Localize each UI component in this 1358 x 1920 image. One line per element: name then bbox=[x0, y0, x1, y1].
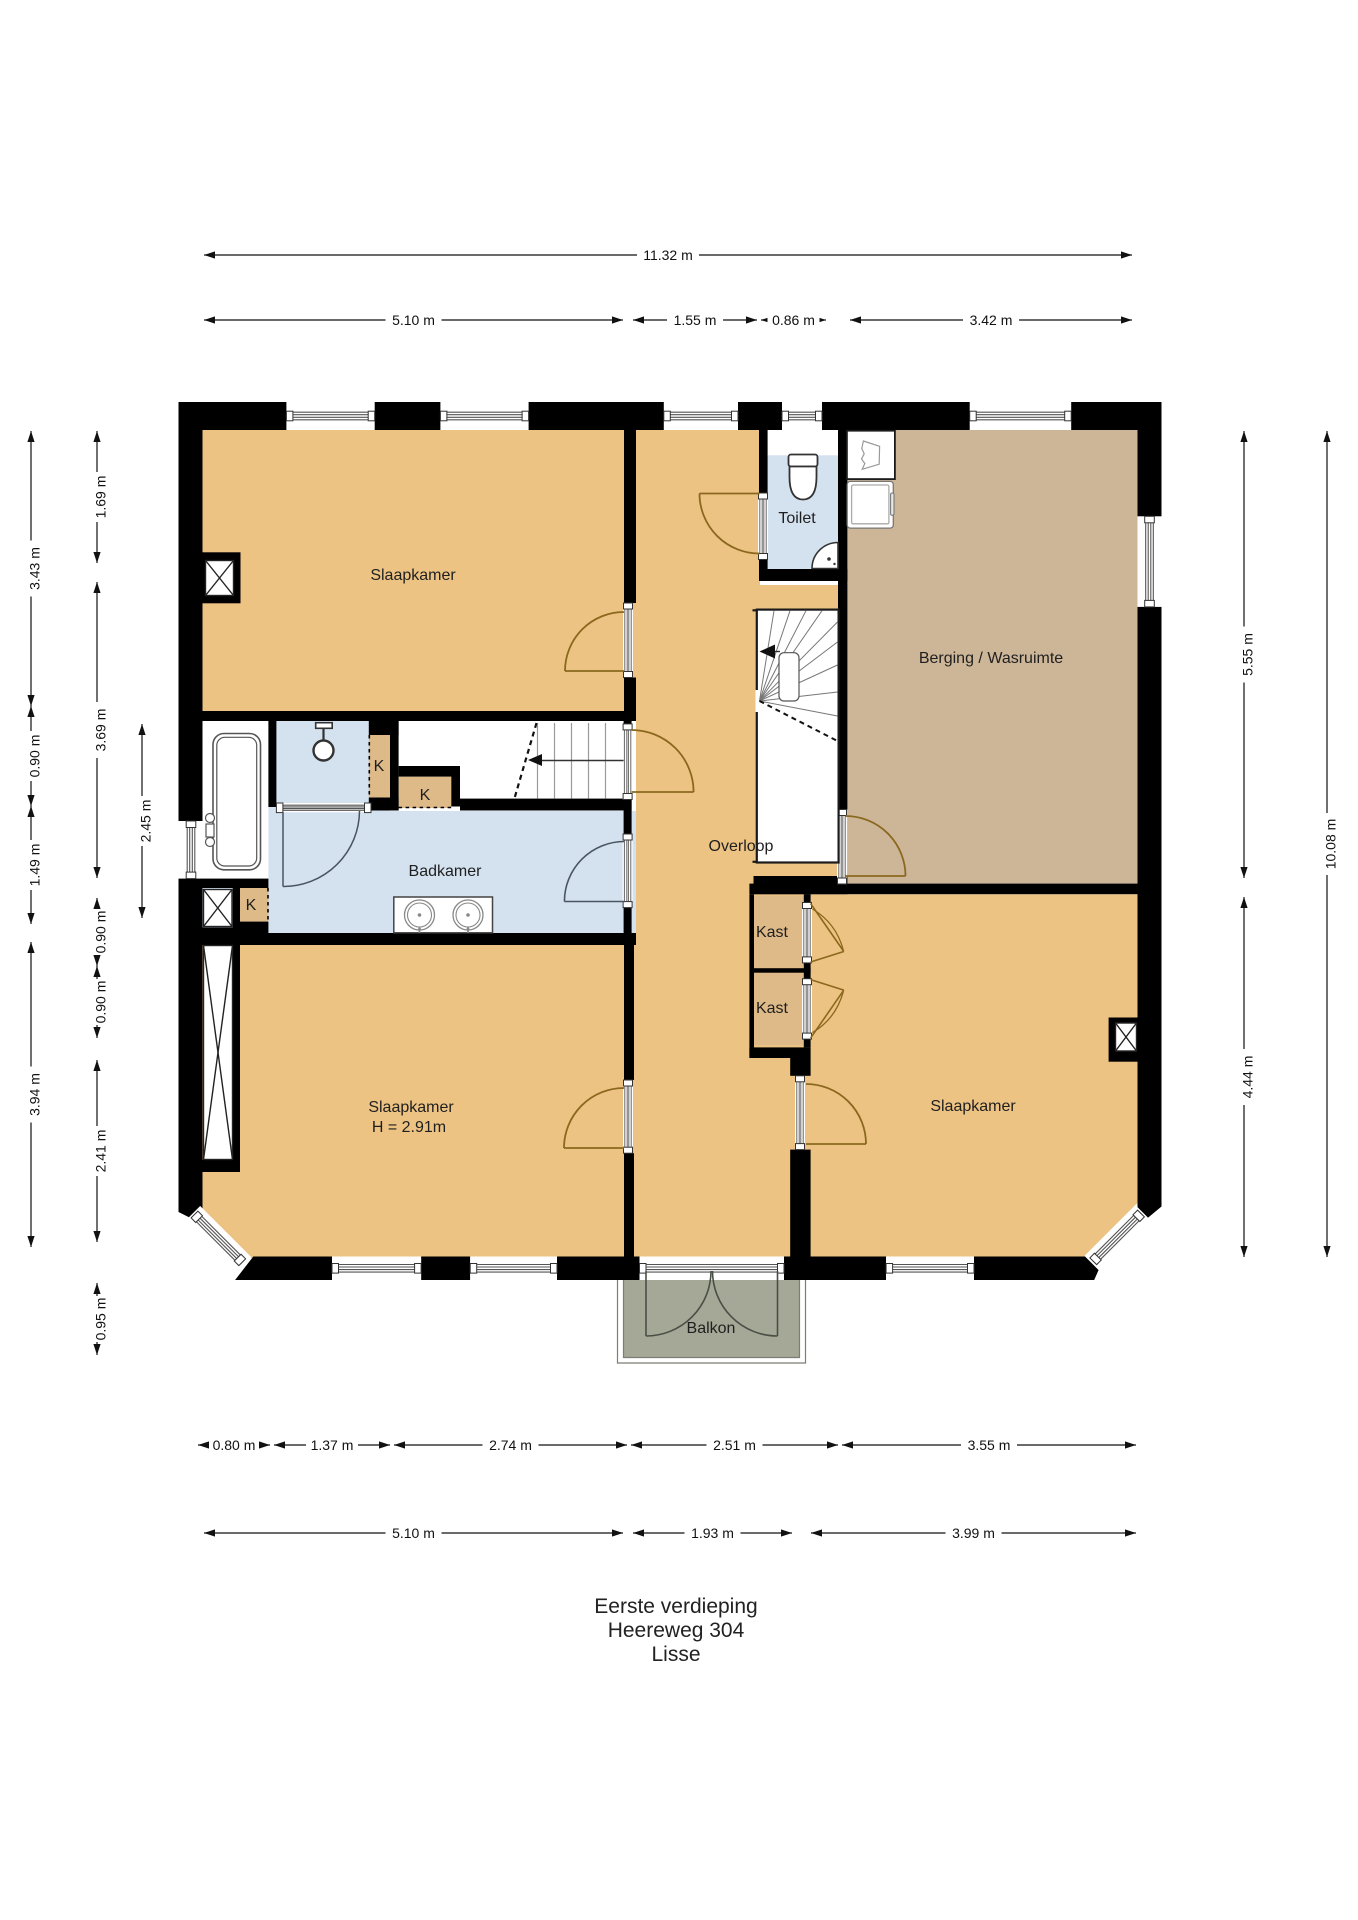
svg-text:2.74 m: 2.74 m bbox=[489, 1437, 532, 1453]
svg-text:3.94 m: 3.94 m bbox=[27, 1073, 43, 1116]
svg-text:3.55 m: 3.55 m bbox=[968, 1437, 1011, 1453]
svg-text:H = 2.91m: H = 2.91m bbox=[372, 1119, 446, 1136]
svg-text:3.99 m: 3.99 m bbox=[952, 1525, 995, 1541]
svg-text:0.90 m: 0.90 m bbox=[93, 911, 109, 954]
svg-text:1.93 m: 1.93 m bbox=[691, 1525, 734, 1541]
svg-text:1.37 m: 1.37 m bbox=[311, 1437, 354, 1453]
svg-text:Slaapkamer: Slaapkamer bbox=[370, 567, 456, 584]
svg-text:2.45 m: 2.45 m bbox=[138, 800, 154, 843]
svg-text:1.55 m: 1.55 m bbox=[674, 312, 717, 328]
svg-text:3.69 m: 3.69 m bbox=[93, 709, 109, 752]
svg-text:Berging / Wasruimte: Berging / Wasruimte bbox=[919, 650, 1063, 667]
svg-text:Slaapkamer: Slaapkamer bbox=[368, 1099, 454, 1116]
svg-text:0.90 m: 0.90 m bbox=[27, 735, 43, 778]
svg-text:5.10 m: 5.10 m bbox=[392, 1525, 435, 1541]
svg-text:1.49 m: 1.49 m bbox=[27, 844, 43, 887]
svg-text:10.08 m: 10.08 m bbox=[1323, 819, 1339, 870]
svg-text:Badkamer: Badkamer bbox=[409, 863, 483, 880]
svg-text:3.43 m: 3.43 m bbox=[27, 547, 43, 590]
svg-text:K: K bbox=[374, 758, 385, 775]
svg-text:Kast: Kast bbox=[756, 924, 789, 941]
svg-text:Heereweg 304: Heereweg 304 bbox=[608, 1619, 745, 1642]
svg-text:0.95 m: 0.95 m bbox=[93, 1298, 109, 1341]
svg-text:0.90 m: 0.90 m bbox=[93, 981, 109, 1024]
svg-text:Eerste verdieping: Eerste verdieping bbox=[594, 1595, 757, 1618]
svg-text:Toilet: Toilet bbox=[778, 510, 816, 527]
svg-text:5.10 m: 5.10 m bbox=[392, 312, 435, 328]
svg-text:K: K bbox=[420, 787, 431, 804]
svg-text:Kast: Kast bbox=[756, 1000, 789, 1017]
svg-text:4.44 m: 4.44 m bbox=[1240, 1056, 1256, 1099]
svg-text:11.32 m: 11.32 m bbox=[643, 247, 693, 263]
svg-text:1.69 m: 1.69 m bbox=[93, 476, 109, 519]
svg-text:0.86 m: 0.86 m bbox=[772, 312, 815, 328]
svg-text:2.41 m: 2.41 m bbox=[93, 1130, 109, 1173]
svg-text:5.55 m: 5.55 m bbox=[1240, 633, 1256, 676]
svg-text:Slaapkamer: Slaapkamer bbox=[930, 1098, 1016, 1115]
svg-text:K: K bbox=[246, 897, 257, 914]
svg-text:3.42 m: 3.42 m bbox=[970, 312, 1013, 328]
svg-text:Balkon: Balkon bbox=[687, 1320, 736, 1337]
svg-text:Overloop: Overloop bbox=[709, 838, 774, 855]
svg-text:0.80 m: 0.80 m bbox=[213, 1437, 256, 1453]
svg-text:2.51 m: 2.51 m bbox=[713, 1437, 756, 1453]
svg-text:Lisse: Lisse bbox=[651, 1643, 700, 1666]
